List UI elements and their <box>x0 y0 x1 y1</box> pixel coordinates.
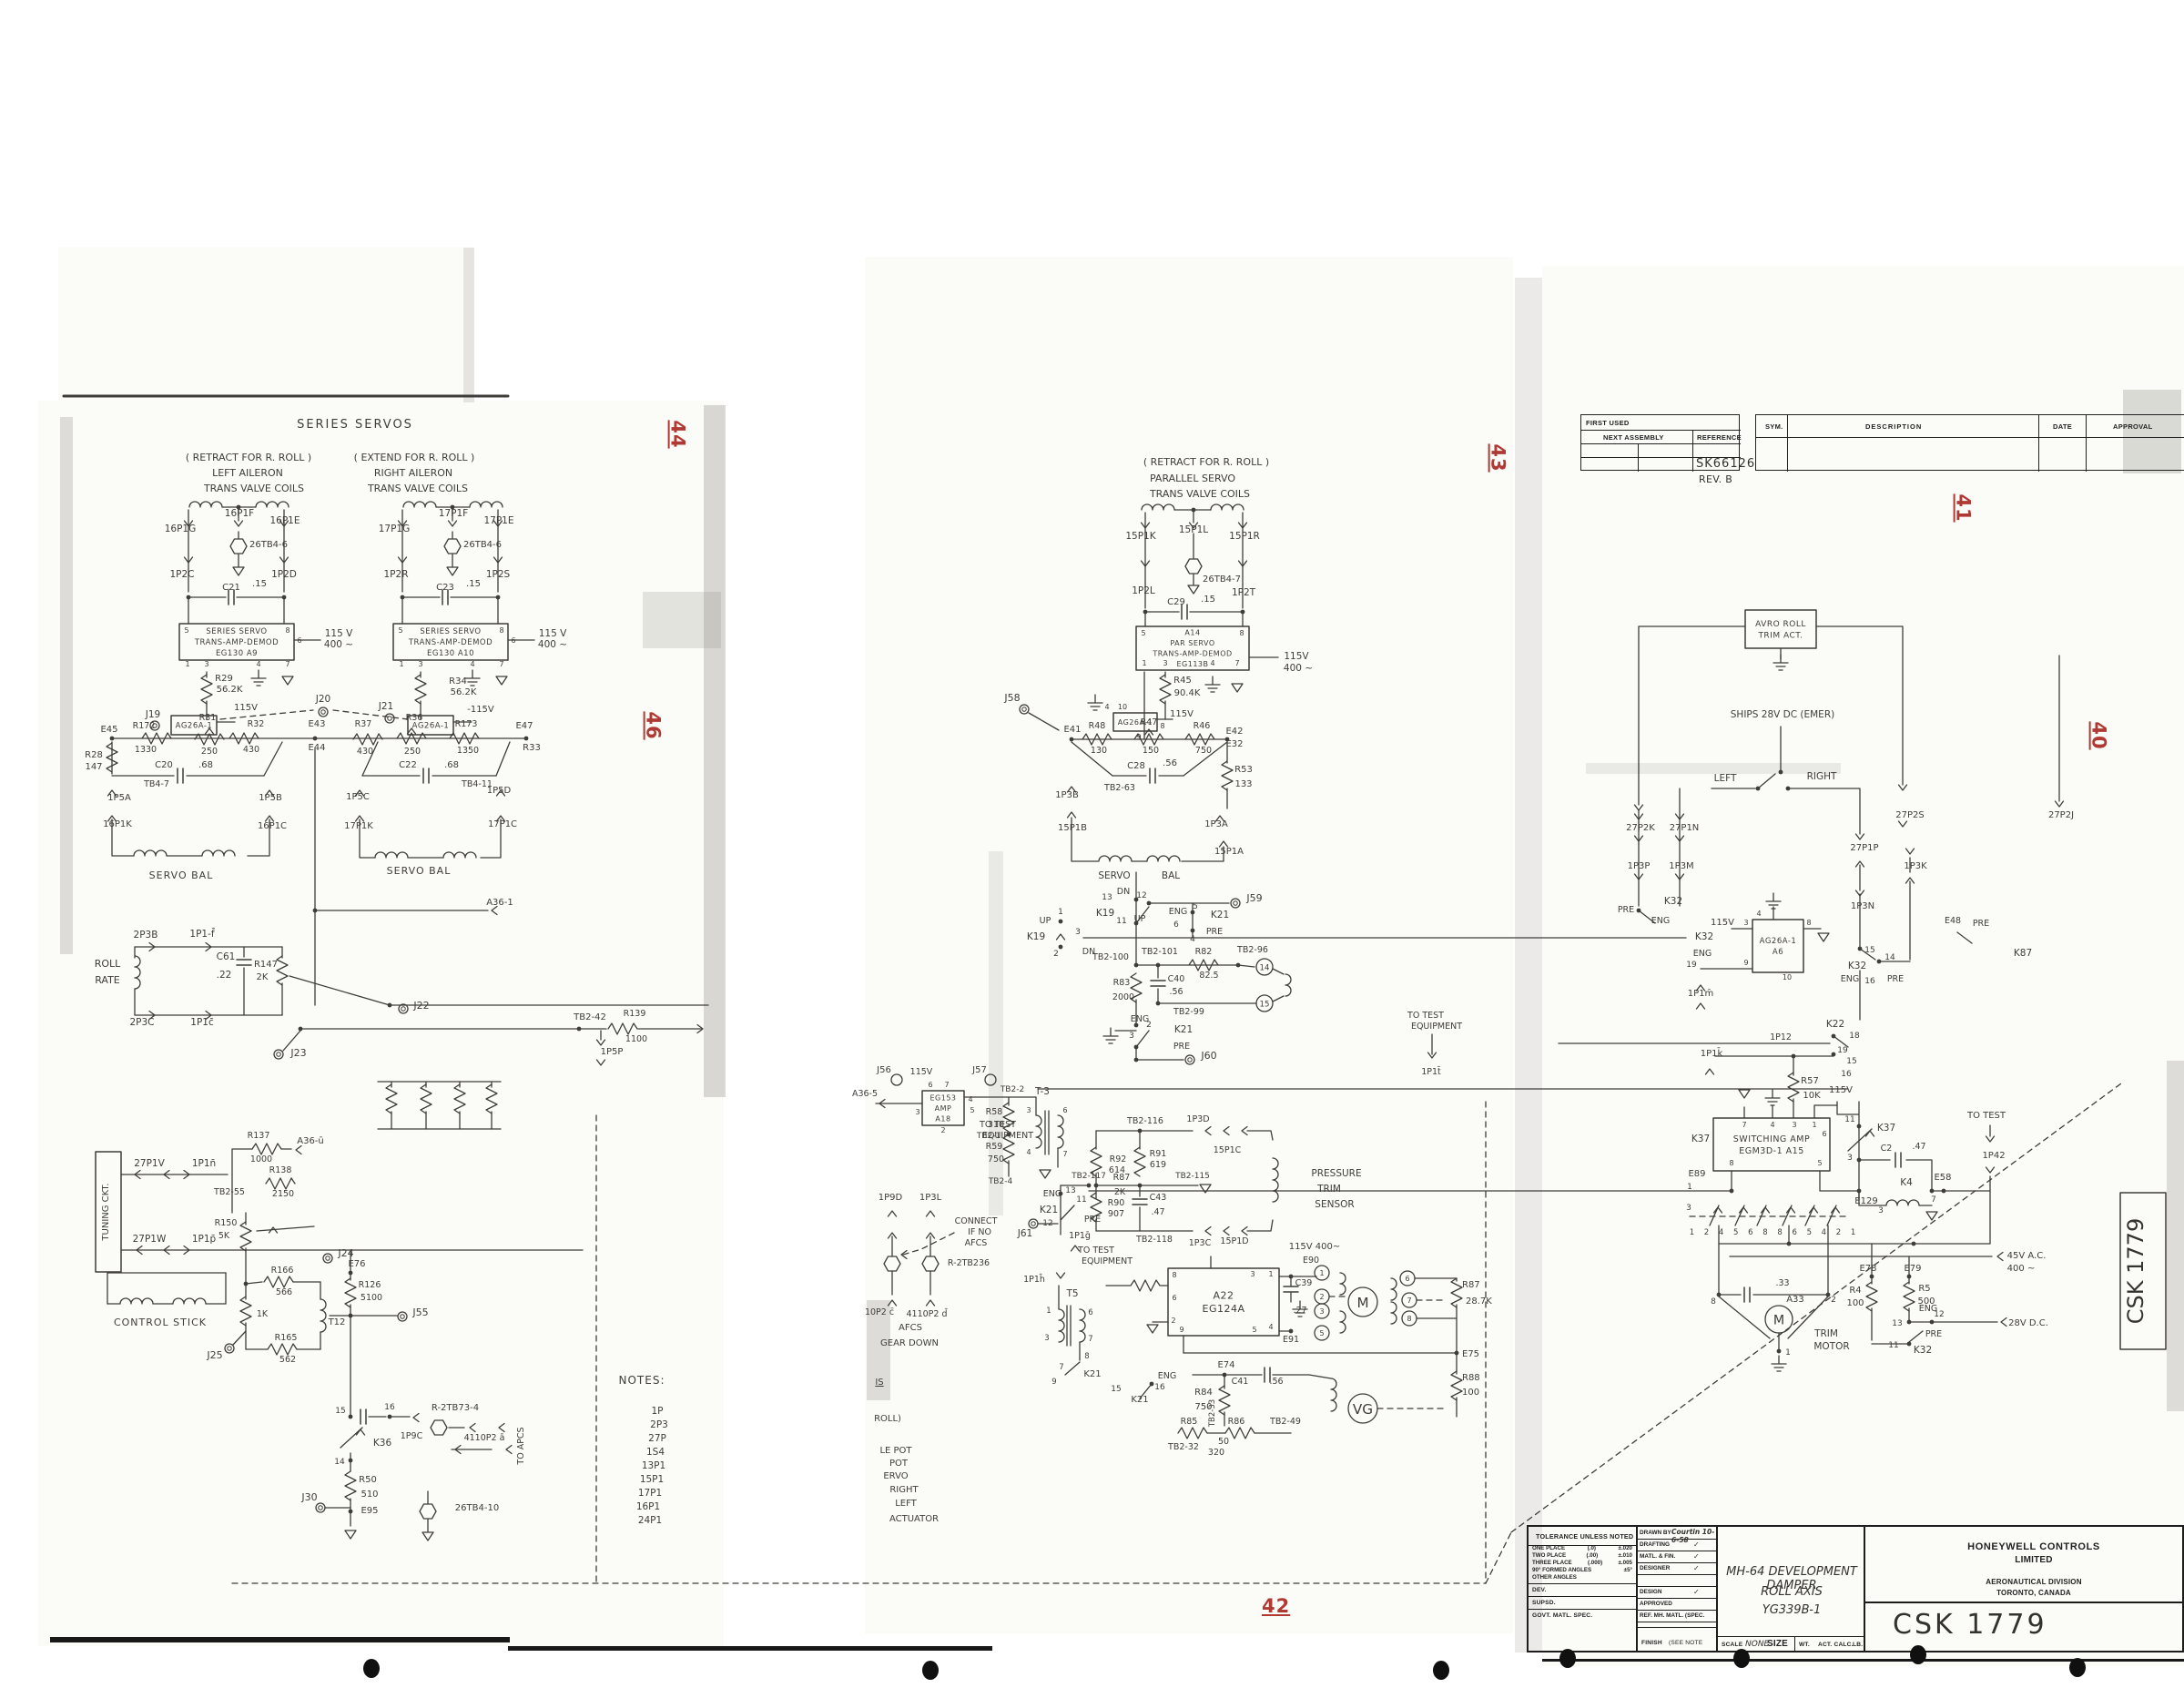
schematic-label: 2P3 <box>650 1419 668 1430</box>
schematic-label: 115V <box>1829 1085 1853 1095</box>
component-box-label: AMP <box>935 1104 952 1113</box>
schematic-label: 15 <box>1846 1057 1856 1066</box>
component-box-label: TRANS-AMP-DEMOD <box>408 638 493 647</box>
junction-dot <box>313 737 318 741</box>
schematic-label: R48 <box>1089 721 1106 731</box>
schematic-label: 130 <box>1091 746 1107 756</box>
schematic-label: 11 <box>1844 1115 1854 1124</box>
connector-triangle <box>1818 933 1829 941</box>
schematic-label: TRANS VALVE COILS <box>203 483 304 494</box>
schematic-label: 6 <box>1088 1308 1092 1317</box>
connector-triangle <box>1040 1170 1051 1178</box>
drawing-title-line3: YG339B-1 <box>1720 1603 1864 1617</box>
schematic-label: 16P1G <box>165 524 197 534</box>
schematic-label: TRANS VALVE COILS <box>1149 488 1250 500</box>
schematic-label: J21 <box>378 701 393 712</box>
capacitor <box>1151 981 1165 986</box>
schematic-label: R32 <box>248 719 265 729</box>
coil <box>134 850 167 856</box>
schematic-label: RIGHT <box>889 1485 919 1495</box>
resistor <box>1788 1073 1799 1102</box>
schematic-label: R4 <box>1849 1286 1861 1296</box>
wire <box>1909 1331 1923 1342</box>
schematic-label: TB2-117 <box>1071 1172 1106 1181</box>
schematic-label: 400 ~ <box>1284 663 1313 674</box>
schematic-label: ROLL <box>95 958 121 970</box>
connector-triangle <box>1926 1212 1937 1220</box>
titleblock-sign-row: DESIGN✓ <box>1637 1586 1716 1599</box>
junction-circle <box>1029 1219 1038 1228</box>
schematic-label: 1P1c̄ <box>190 1017 214 1028</box>
component-box-label: TRANS-AMP-DEMOD <box>1152 650 1232 658</box>
schematic-label: PRE <box>1206 927 1223 937</box>
schematic-label: 7 <box>285 660 290 668</box>
component-box-label: EG124A <box>1203 1303 1245 1315</box>
wire <box>264 742 282 776</box>
company-line3: AERONAUTICAL DIVISION <box>1884 1578 2184 1586</box>
wire <box>1136 1031 1149 1047</box>
schematic-label: TB2-55 <box>213 1187 245 1197</box>
schematic-label: R28 <box>85 750 103 760</box>
schematic-label: SERIES SERVOS <box>297 418 413 432</box>
schematic-label: 8 <box>1711 1297 1716 1307</box>
schematic-label: E47 <box>515 721 533 731</box>
hex-terminal <box>922 1256 939 1271</box>
schematic-label: 26TB4-10 <box>455 1503 499 1513</box>
schematic-label: TRANS VALVE COILS <box>367 483 468 494</box>
schematic-label: 15 <box>335 1407 345 1416</box>
schematic-label: .22 <box>217 970 232 981</box>
circle-label: M <box>1356 1295 1368 1311</box>
schematic-label: 17P1K <box>344 821 373 831</box>
wire <box>232 1149 252 1174</box>
schematic-label: 27P2J <box>2048 810 2074 820</box>
resistor <box>415 675 426 704</box>
schematic-label: T5 <box>1065 1288 1078 1299</box>
component-box-label: EGM3D-1 A15 <box>1739 1146 1804 1156</box>
junction-circle-inner <box>1031 1222 1036 1226</box>
schematic-label: 1P1ḡ <box>1069 1231 1091 1241</box>
schematic-label: TB2-32 <box>1167 1442 1199 1452</box>
capacitor <box>178 768 183 783</box>
schematic-label: .68 <box>198 760 213 770</box>
schematic-label: 2 <box>940 1126 945 1134</box>
schematic-label: 3 <box>1163 659 1167 667</box>
schematic-label: C20 <box>155 760 173 770</box>
junction-circle <box>323 1254 332 1263</box>
circle-label: M <box>1773 1314 1784 1328</box>
resistor <box>608 1023 637 1034</box>
schematic-label: TB2-1 <box>976 1132 1001 1141</box>
coil <box>1211 504 1244 510</box>
date-header: DATE <box>2053 422 2072 431</box>
schematic-label: 6 <box>1062 1106 1067 1114</box>
schematic-label: 26TB4-6 <box>463 540 502 550</box>
arrow-chevron <box>1242 1227 1247 1235</box>
arrow-chevron <box>927 1300 935 1306</box>
arrow-chevron <box>235 521 243 526</box>
schematic-label: 100 <box>1846 1298 1864 1308</box>
schematic-label: 3 <box>1044 1334 1049 1343</box>
circle-label: 14 <box>1260 963 1270 972</box>
punch-hole-mark <box>1733 1649 1750 1668</box>
schematic-label: 1P1p̄ <box>192 1234 217 1245</box>
wire <box>1061 1205 1074 1220</box>
schematic-label: 10 <box>1783 973 1792 981</box>
scan-noise <box>1515 278 1542 1652</box>
company-line2: LIMITED <box>1884 1555 2184 1565</box>
schematic-label: 15P1A <box>1214 847 1244 857</box>
schematic-label: J57 <box>971 1065 987 1075</box>
schematic-label: R5 <box>1918 1284 1930 1294</box>
schematic-label: 3 <box>1743 919 1748 927</box>
schematic-label: 4 <box>1210 659 1214 667</box>
circle-label: 1 <box>1319 1269 1324 1277</box>
schematic-label: 250 <box>201 747 218 757</box>
schematic-label: 2 <box>1171 1317 1175 1325</box>
junction-dot <box>110 737 115 741</box>
schematic-label: 7 <box>1742 1121 1746 1129</box>
schematic-label: R87 <box>1113 1173 1131 1183</box>
coil <box>403 502 436 507</box>
schematic-label: C23 <box>436 583 454 593</box>
supsd-label: SUPSD. <box>1532 1600 1556 1606</box>
schematic-label: 15P1 <box>640 1474 664 1485</box>
coil <box>1059 1309 1064 1342</box>
schematic-label: 1 <box>1142 659 1146 667</box>
schematic-label: K21 <box>1131 1395 1148 1405</box>
schematic-label: C39 <box>1295 1278 1313 1288</box>
junction-dot <box>1942 1189 1946 1194</box>
schematic-label: TRIM <box>1316 1184 1341 1195</box>
wire <box>1247 1220 1273 1231</box>
circle-label: 15 <box>1260 1000 1270 1009</box>
schematic-label: TB2-4 <box>988 1177 1013 1186</box>
schematic-label: 3 <box>1075 928 1081 937</box>
schematic-label: 1P1-f̄ <box>189 928 215 940</box>
arrow-chevron <box>296 1146 301 1154</box>
resistor <box>1131 1280 1160 1291</box>
schematic-label: 27P2K <box>1626 823 1655 833</box>
junction-dot <box>1870 1275 1874 1279</box>
junction-dot <box>1779 770 1783 775</box>
coil <box>189 502 222 507</box>
resistor <box>386 1084 397 1113</box>
schematic-label: 4 <box>470 660 474 668</box>
schematic-label: 1P2R <box>384 569 409 580</box>
company-line1: HONEYWELL CONTROLS <box>1884 1541 2184 1552</box>
connector-triangle <box>345 1530 356 1539</box>
schematic-label: J24 <box>337 1247 353 1259</box>
connector-triangle <box>1188 585 1199 594</box>
schematic-label: 6 <box>928 1081 932 1089</box>
arrow-chevron <box>1986 1167 1995 1173</box>
schematic-label: 115 V <box>539 628 567 639</box>
arrow-chevron <box>2001 1318 2006 1327</box>
circle-label: 2 <box>1319 1293 1324 1301</box>
resistor <box>454 1084 465 1113</box>
dashed-wire <box>333 710 408 719</box>
schematic-label: R173 <box>455 719 478 729</box>
scan-noise <box>2167 1061 2184 1411</box>
schematic-label: 1P2L <box>1132 585 1155 596</box>
resistor <box>240 1222 251 1251</box>
component-box-label: EG113B <box>1176 660 1208 668</box>
schematic-label: R83 <box>1113 978 1131 988</box>
schematic-label: R57 <box>1801 1076 1819 1086</box>
junction-circle-inner <box>401 1315 405 1319</box>
schematic-label: ACTUATOR <box>889 1514 939 1524</box>
hex-terminal <box>420 1504 436 1519</box>
schematic-label: J58 <box>1003 692 1020 704</box>
schematic-label: 1P2C <box>169 569 194 580</box>
wire <box>1238 965 1255 967</box>
resistor <box>1160 675 1171 704</box>
schematic-label: 28V D.C. <box>2008 1318 2048 1328</box>
schematic-label: R-2TB73-4 <box>432 1403 479 1413</box>
junction-dot <box>1059 920 1063 924</box>
coil <box>120 1298 153 1304</box>
schematic-label: 2 <box>1146 1021 1152 1030</box>
schematic-label: TB2-116 <box>1126 1116 1163 1126</box>
schematic-label: 5 <box>398 626 402 635</box>
junction-circle-inner <box>228 1347 232 1351</box>
schematic-label: E48 <box>1945 916 1961 926</box>
schematic-label: E79 <box>1904 1264 1921 1274</box>
coil <box>1391 1302 1397 1324</box>
schematic-label: J30 <box>300 1491 317 1503</box>
schematic-label: TB2-96 <box>1236 945 1268 955</box>
junction-dot <box>1730 1189 1734 1194</box>
schematic-label: 8 <box>1806 919 1811 927</box>
schematic-label: R139 <box>624 1009 646 1019</box>
arrow-chevron <box>1762 1207 1770 1213</box>
schematic-label: 45V A.C. <box>2007 1251 2047 1261</box>
schematic-label: UP <box>1134 914 1146 924</box>
schematic-label: 8 <box>285 626 290 635</box>
schematic-label: ENG <box>1169 907 1187 917</box>
schematic-label: 17P1 <box>638 1488 662 1499</box>
schematic-label: IF NO <box>968 1227 991 1237</box>
tolerance-row: OTHER ANGLES <box>1532 1574 1632 1581</box>
schematic-label: K22 <box>1826 1019 1844 1030</box>
schematic-label: 1 <box>185 660 189 668</box>
arrow-chevron <box>499 1424 504 1432</box>
component-box-label: TRIM ACT. <box>1757 631 1803 640</box>
schematic-label: 8 <box>499 626 503 635</box>
schematic-label: R53 <box>1234 765 1253 775</box>
schematic-label: RIGHT <box>1807 771 1837 782</box>
govt-matl-spec-label: GOVT. MATL. SPEC. <box>1532 1612 1592 1619</box>
schematic-layer: SERIES SERVOS( RETRACT FOR R. ROLL )LEFT… <box>0 0 2184 1688</box>
schematic-label: 5 <box>1252 1326 1256 1334</box>
resistor <box>277 956 288 985</box>
wire <box>1273 969 1284 974</box>
schematic-label: TUNING CKT. <box>101 1183 111 1241</box>
schematic-label: 1P <box>651 1406 663 1417</box>
schematic-label: R58 <box>986 1107 1003 1117</box>
schematic-label: 150 <box>1143 746 1159 756</box>
resistor <box>1225 1428 1255 1439</box>
schematic-label: R172 <box>133 721 156 731</box>
schematic-label: 3 <box>915 1108 919 1116</box>
hex-terminal <box>444 539 461 554</box>
schematic-label: E58 <box>1934 1173 1951 1183</box>
schematic-label: 5100 <box>361 1293 382 1303</box>
arrow-chevron <box>1986 1136 1995 1142</box>
arrow-chevron <box>1714 1207 1722 1213</box>
schematic-label: 9 <box>1743 959 1748 967</box>
schematic-label: J19 <box>145 709 160 720</box>
schematic-label: 56.2K <box>451 687 477 697</box>
schematic-label: .68 <box>444 760 459 770</box>
schematic-label: TRIM <box>1813 1328 1838 1339</box>
schematic-label: R138 <box>269 1165 292 1175</box>
tolerance-row: TWO PLACE(.00)±.010 <box>1532 1552 1632 1559</box>
circle-label: VG <box>1353 1401 1373 1418</box>
arrow-chevron <box>470 1424 475 1432</box>
schematic-label: EQUIPMENT <box>1411 1022 1462 1032</box>
punch-hole-mark <box>922 1661 939 1680</box>
ground-symbol <box>1772 1356 1786 1371</box>
company-line4: TORONTO, CANADA <box>1884 1589 2184 1597</box>
schematic-label: PRE <box>1173 1042 1190 1052</box>
schematic-label: PRESSURE <box>1311 1168 1361 1179</box>
scale-value: NONE <box>1745 1640 1769 1649</box>
schematic-label: 15 <box>1864 946 1874 955</box>
schematic-label: 13 <box>1065 1186 1075 1195</box>
schematic-label: SERVO BAL <box>149 869 214 881</box>
schematic-label: K37 <box>1691 1134 1710 1144</box>
schematic-label: PRE <box>1618 905 1634 915</box>
schematic-label: 15P1D <box>1220 1236 1248 1246</box>
arrow-chevron <box>506 1446 512 1454</box>
arrow-chevron <box>449 521 457 526</box>
junction-circle <box>225 1344 234 1353</box>
schematic-label: 10P2 c̄ <box>865 1307 894 1317</box>
resistor <box>1219 1386 1230 1415</box>
schematic-label: TB2-63 <box>1103 783 1135 793</box>
schematic-label: 3 <box>1847 1154 1853 1163</box>
schematic-label: E95 <box>361 1506 378 1516</box>
schematic-label: 430 <box>357 747 373 757</box>
schematic-label: 27P1N <box>1670 823 1700 833</box>
ground-symbol <box>1773 655 1788 670</box>
junction-circle-inner <box>319 1506 323 1510</box>
scanned-schematic-composite: SERIES SERVOS( RETRACT FOR R. ROLL )LEFT… <box>0 0 2184 1688</box>
schematic-label: R165 <box>275 1333 298 1343</box>
schematic-label: 1100 <box>625 1034 647 1044</box>
connector-triangle <box>1232 684 1243 692</box>
schematic-label: 7 <box>944 1081 949 1089</box>
hex-terminal <box>230 539 247 554</box>
wire <box>1788 788 1860 834</box>
schematic-label: K32 <box>1914 1345 1932 1356</box>
reference-value: SK66126 <box>1696 457 1755 471</box>
schematic-label: 1P9C <box>401 1431 423 1441</box>
coil <box>1273 1158 1278 1202</box>
schematic-label: A33 <box>1786 1295 1804 1305</box>
schematic-label: .15 <box>1201 595 1215 605</box>
arrow-chevron <box>413 1414 419 1422</box>
schematic-label: R150 <box>215 1218 238 1228</box>
schematic-label: ROLL) <box>874 1414 901 1424</box>
schematic-label: 90.4K <box>1174 688 1201 698</box>
component-box-label: EG130 A9 <box>216 649 258 658</box>
capacitor <box>1150 768 1155 783</box>
schematic-label: 82.5 <box>1199 971 1218 981</box>
schematic-label: R45 <box>1173 676 1192 686</box>
schematic-label: 16P1F <box>225 508 254 519</box>
schematic-label: 1P2D <box>271 569 297 580</box>
size-label: SIZE <box>1767 1639 1788 1649</box>
arrow-chevron <box>1224 1127 1229 1135</box>
titleblock-sign-row: REF. MH. MATL. (SPEC. <box>1637 1610 1716 1622</box>
schematic-label: 320 <box>1208 1448 1224 1458</box>
schematic-label: 2 <box>1831 1296 1836 1305</box>
coil <box>202 850 235 856</box>
component-box <box>1745 610 1816 648</box>
arrow-chevron <box>1205 1227 1211 1235</box>
coil <box>1142 504 1174 510</box>
schematic-label: 11 <box>1888 1341 1898 1350</box>
schematic-label: K32 <box>1848 961 1866 971</box>
schematic-label: K36 <box>373 1438 392 1449</box>
junction-dot <box>349 1510 353 1514</box>
schematic-label: J61 <box>1017 1228 1032 1239</box>
schematic-label: 4 <box>1190 935 1195 944</box>
schematic-label: R33 <box>523 743 541 753</box>
schematic-label: UP <box>1040 916 1051 926</box>
schematic-label: 1P3P <box>1628 861 1651 871</box>
schematic-label: ( RETRACT FOR R. ROLL ) <box>186 452 311 463</box>
schematic-label: 1 <box>1687 1183 1692 1192</box>
schematic-label: E41 <box>1063 725 1081 735</box>
schematic-label: R82 <box>1195 947 1213 957</box>
wire <box>1957 932 1972 943</box>
component-box-label: EG153 <box>929 1093 956 1102</box>
schematic-label: 11 <box>1116 917 1126 926</box>
wire <box>496 742 510 776</box>
dashed-wire <box>1511 1083 2121 1532</box>
schematic-label: 510 <box>361 1490 378 1500</box>
schematic-label: 27P1W <box>133 1234 167 1245</box>
schematic-label: R46 <box>1194 721 1211 731</box>
component-box-label: A6 <box>1773 948 1783 957</box>
schematic-label: 147 <box>85 762 102 772</box>
sheet-number-red: 40 <box>2088 721 2110 749</box>
schematic-label: NOTES: <box>619 1374 665 1387</box>
resistor <box>1904 1282 1915 1311</box>
wire <box>1820 1171 1859 1191</box>
schematic-label: R34 <box>449 676 467 686</box>
schematic-label: 1S4 <box>646 1447 665 1458</box>
lb-label: LB. <box>1853 1642 1863 1648</box>
scan-edge-bar <box>1542 1659 2184 1662</box>
coil <box>470 502 503 507</box>
schematic-label: 115V <box>910 1067 933 1077</box>
schematic-label: J55 <box>411 1307 428 1318</box>
schematic-label: 5 <box>1193 902 1198 911</box>
schematic-label: 15 <box>1111 1385 1121 1394</box>
schematic-label: IS <box>875 1378 883 1388</box>
resistor <box>1451 1371 1462 1400</box>
schematic-label: PRE <box>1925 1329 1942 1339</box>
junction-circle-inner <box>1022 707 1027 712</box>
sheet-number-red: 44 <box>667 420 689 448</box>
schematic-label: 16 <box>1864 977 1875 986</box>
schematic-label: 4 <box>1104 703 1109 711</box>
